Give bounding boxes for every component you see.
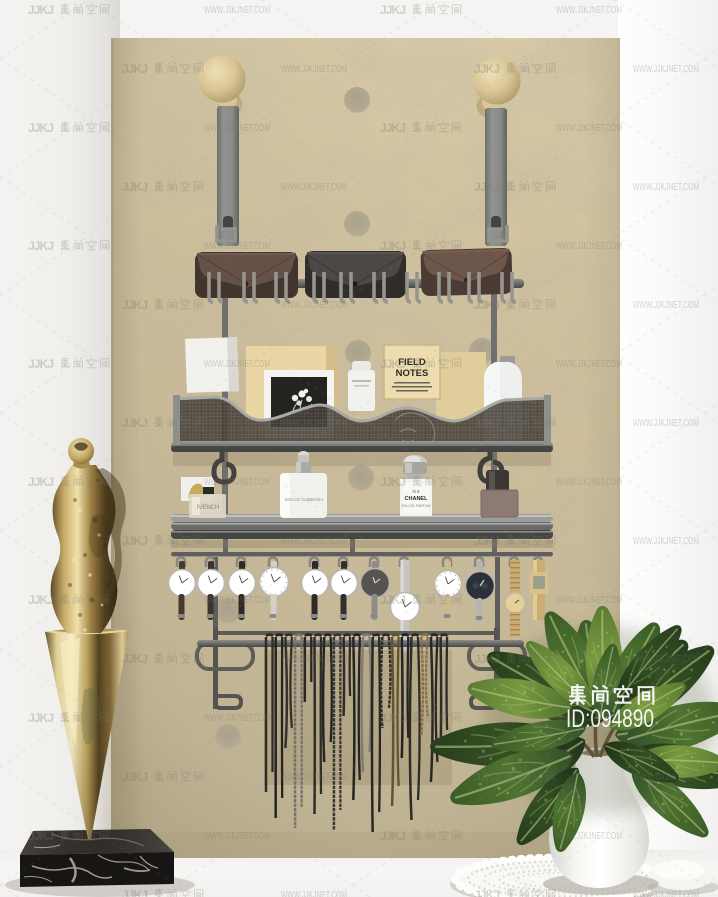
svg-text:ID:094890: ID:094890 [566, 705, 654, 733]
